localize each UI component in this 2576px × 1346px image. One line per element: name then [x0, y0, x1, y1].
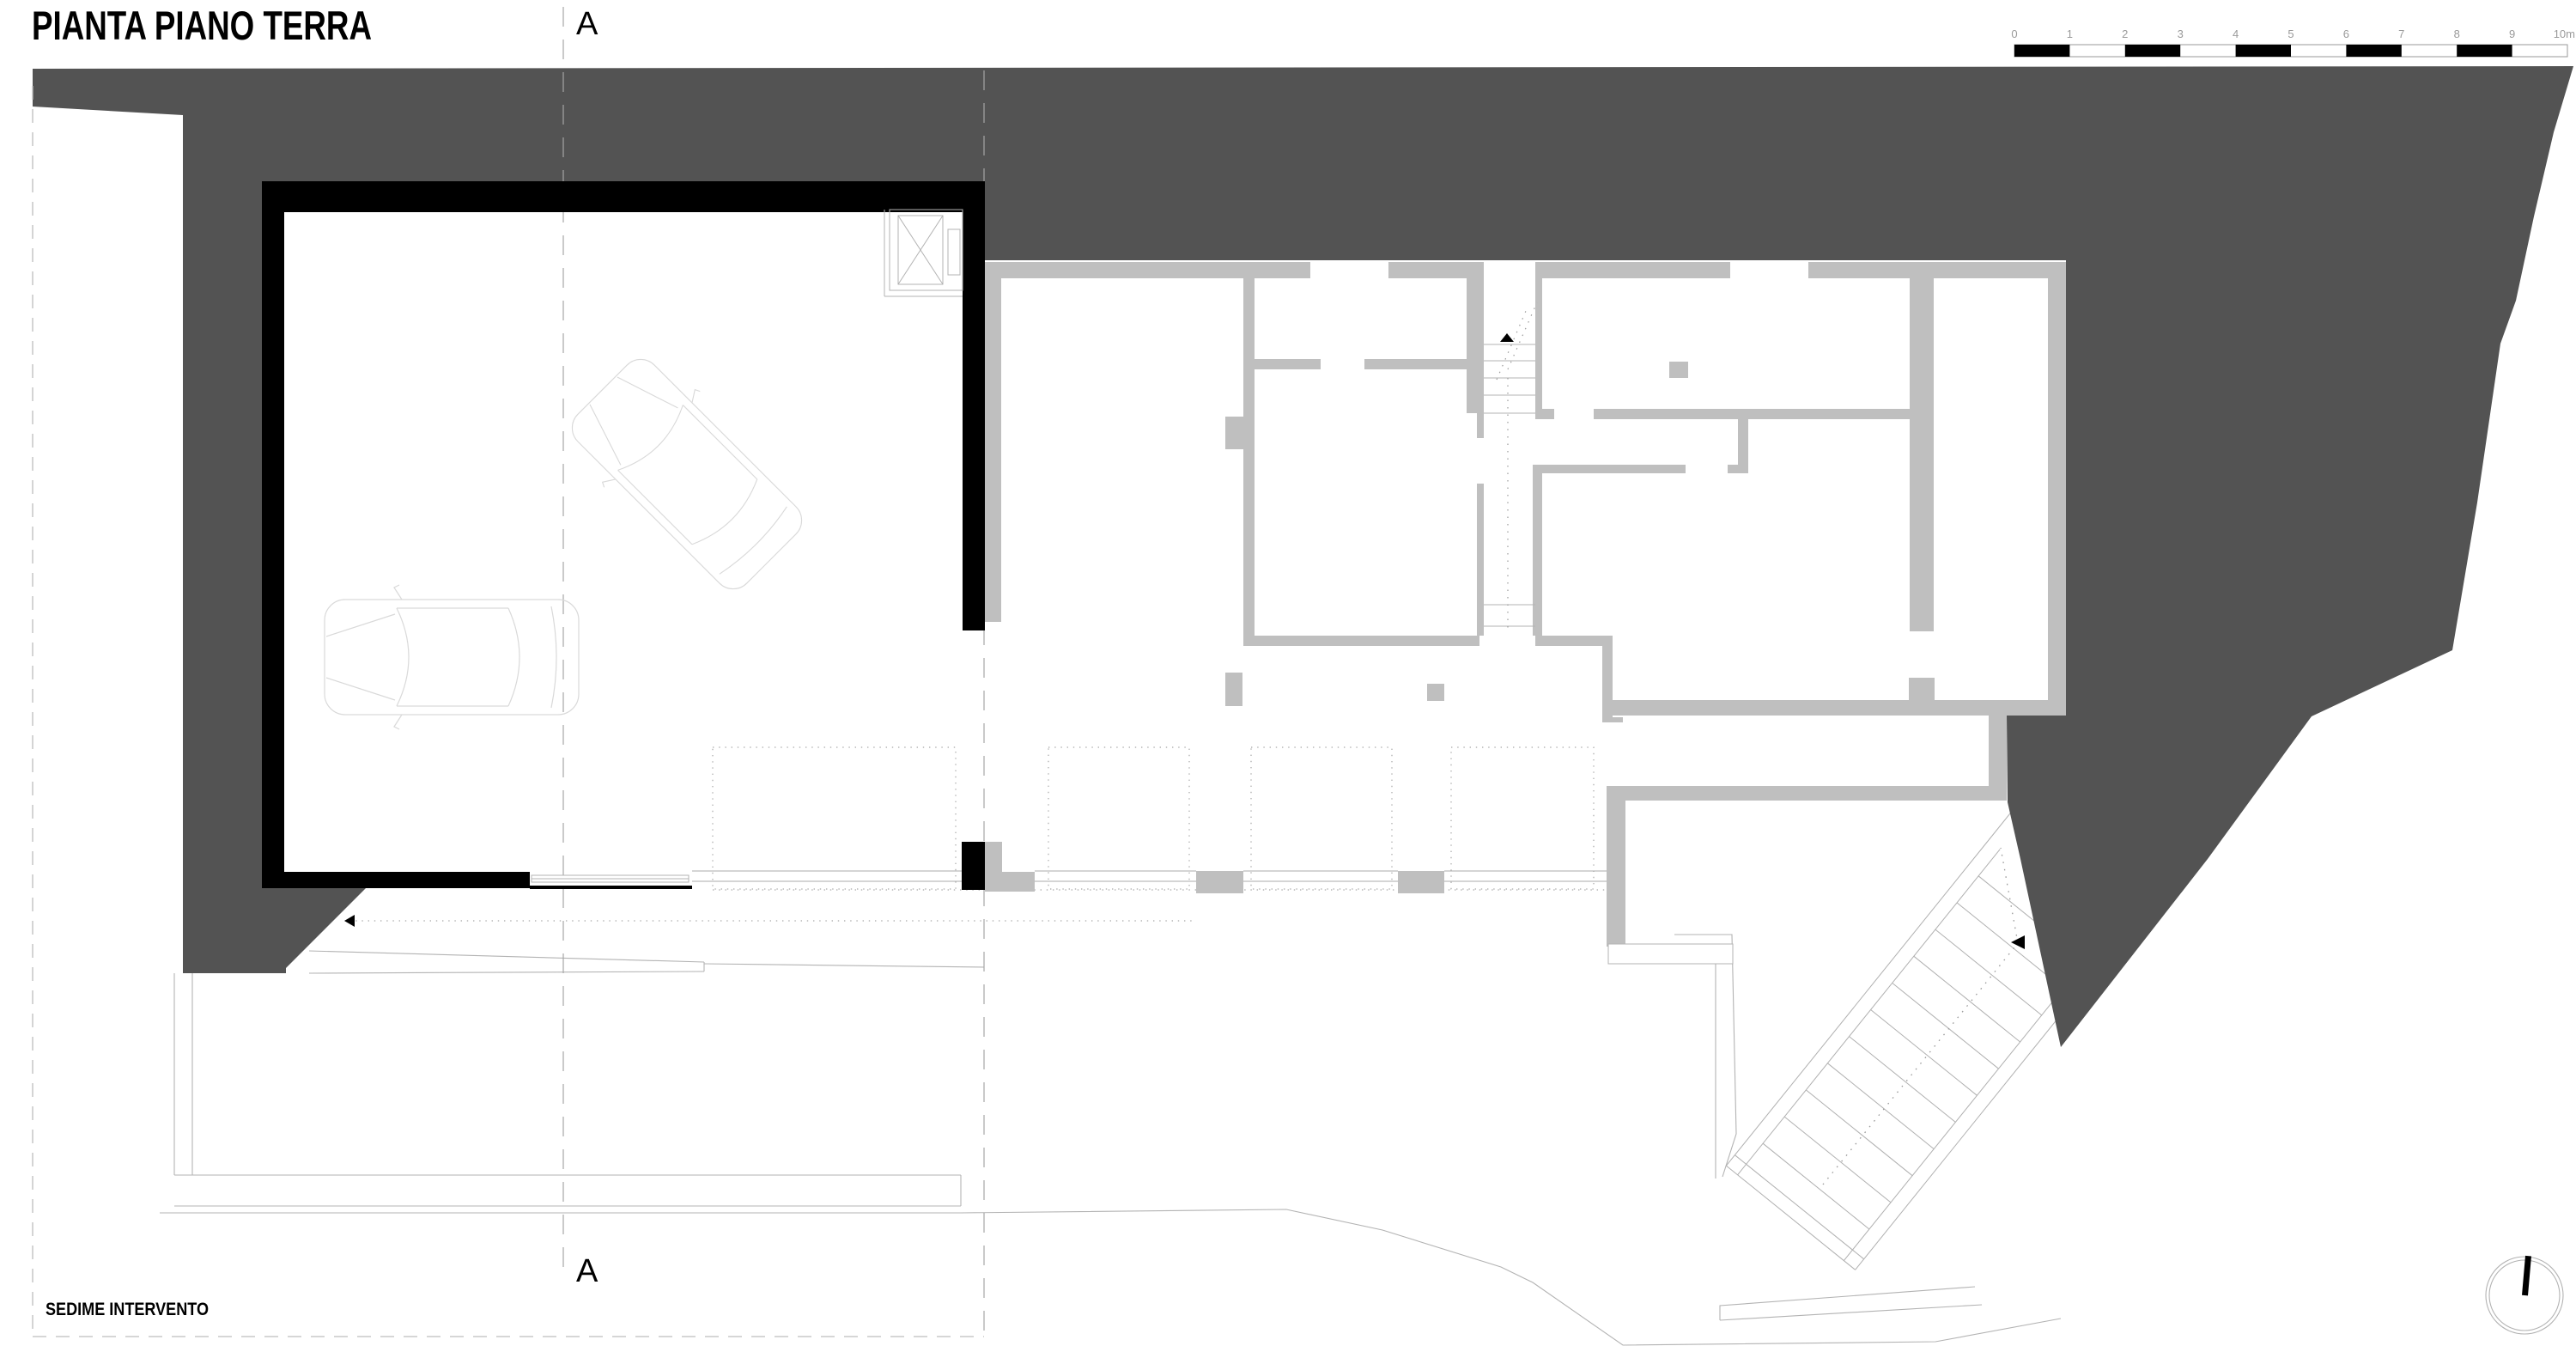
svg-text:6: 6 — [2343, 27, 2349, 40]
svg-text:PIANTA PIANO TERRA: PIANTA PIANO TERRA — [32, 3, 372, 48]
svg-text:7: 7 — [2398, 27, 2404, 40]
svg-text:A: A — [576, 1253, 598, 1289]
svg-text:5: 5 — [2287, 27, 2293, 40]
svg-text:3: 3 — [2178, 27, 2184, 40]
svg-text:SEDIME INTERVENTO: SEDIME INTERVENTO — [46, 1300, 209, 1319]
svg-text:2: 2 — [2122, 27, 2128, 40]
svg-text:A: A — [576, 6, 598, 42]
svg-text:0: 0 — [2011, 27, 2017, 40]
svg-text:8: 8 — [2454, 27, 2460, 40]
svg-text:9: 9 — [2509, 27, 2515, 40]
svg-text:1: 1 — [2067, 27, 2073, 40]
svg-text:4: 4 — [2233, 27, 2239, 40]
svg-text:10m: 10m — [2554, 27, 2575, 40]
